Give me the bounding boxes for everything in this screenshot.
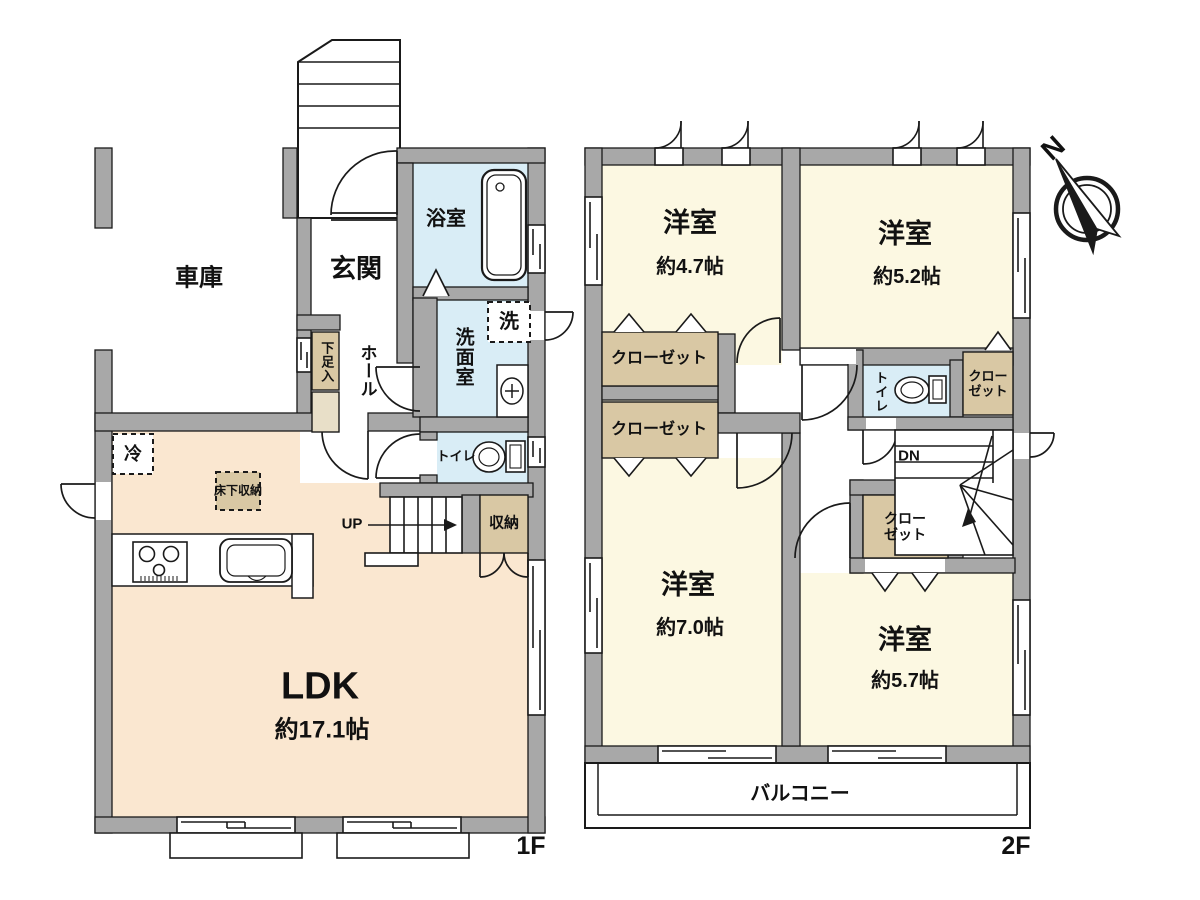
entrance-porch-steps [298,40,400,218]
underfloor-storage-label: 床下収納 [213,484,263,497]
room4-name: 洋室 [878,625,932,655]
room2-size: 約5.2帖 [873,266,941,288]
toilet-1f-label: トイレ [436,450,475,465]
compass-icon [1056,159,1119,252]
washer-label: 洗 [499,311,519,333]
toilet-icon-2f [895,376,946,403]
stairs-up-label: UP [342,517,363,534]
room3-name: 洋室 [661,570,715,600]
storage-label: 収納 [489,516,519,533]
entrance-label: 玄関 [330,254,382,283]
toilet-2f-label: トイレ [873,371,888,413]
floorplan-canvas [0,0,1200,900]
floor1-label: 1F [516,832,545,860]
garage-label: 車庫 [175,266,223,293]
ldk-size-label: 約17.1帖 [275,718,370,745]
floor-plan: 車庫 玄関 浴室 洗 洗面室 下足入 ホール トイレ 冷 床下収納 UP 収納 … [0,0,1200,900]
closet1-label: クローゼット [611,350,707,368]
stairs-down-label: DN [898,449,920,466]
washbasin-icon [497,365,528,417]
balcony-label: バルコニー [750,783,850,805]
ldk-label: LDK [281,666,359,709]
sink-icon [220,539,292,582]
washroom-label: 洗面室 [452,327,473,387]
closet4-label: クローゼット [882,511,928,542]
closet3-label: クローゼット [967,369,1009,398]
closet2-label: クローゼット [611,421,707,439]
room4-size: 約5.7帖 [871,670,939,692]
shoe-storage-label: 下足入 [319,341,334,383]
bath-label: 浴室 [426,208,466,230]
fridge-label: 冷 [124,444,142,464]
stove-icon [133,542,187,582]
floor2-label: 2F [1001,832,1030,860]
toilet-icon-1f [473,441,525,472]
room2-name: 洋室 [878,219,932,249]
bathtub-icon [482,170,526,280]
room1-name: 洋室 [663,208,717,238]
room1-size: 約4.7帖 [656,256,724,278]
room3-size: 約7.0帖 [656,617,724,639]
hall-label: ホール [357,344,376,398]
